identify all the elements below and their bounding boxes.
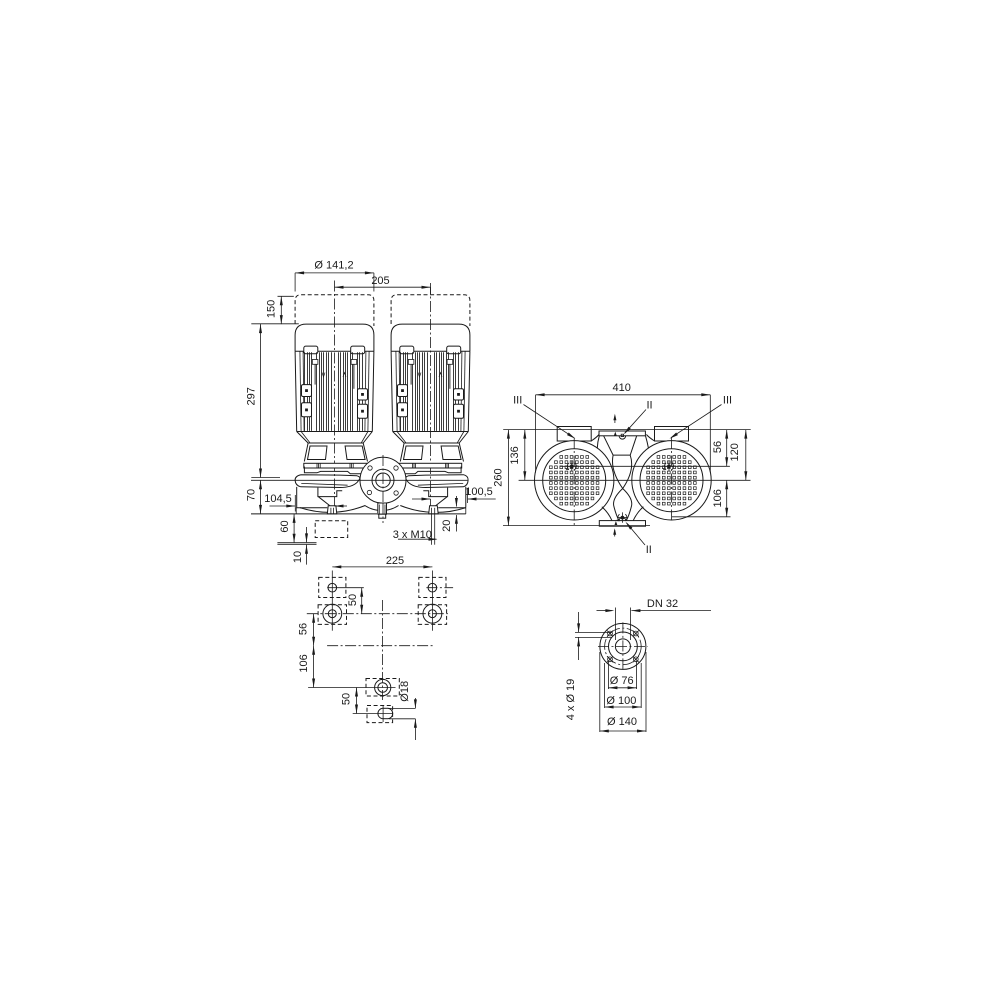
- svg-text:60: 60: [279, 520, 291, 532]
- svg-text:10: 10: [292, 551, 304, 563]
- svg-text:100,5: 100,5: [465, 486, 493, 498]
- svg-text:225: 225: [386, 555, 404, 567]
- svg-text:205: 205: [371, 275, 389, 287]
- svg-text:20: 20: [441, 520, 453, 532]
- svg-text:120: 120: [729, 443, 741, 461]
- svg-text:56: 56: [712, 441, 724, 453]
- svg-text:104,5: 104,5: [264, 493, 292, 505]
- svg-text:50: 50: [341, 693, 353, 705]
- svg-text:150: 150: [266, 300, 278, 318]
- svg-text:II: II: [646, 399, 652, 411]
- svg-text:260: 260: [493, 468, 505, 486]
- svg-text:297: 297: [245, 387, 257, 405]
- svg-text:Ø 140: Ø 140: [607, 716, 637, 728]
- svg-text:II: II: [646, 544, 652, 556]
- svg-text:70: 70: [245, 489, 257, 501]
- svg-text:106: 106: [298, 654, 310, 672]
- svg-text:Ø 76: Ø 76: [610, 675, 634, 687]
- svg-text:III: III: [723, 394, 732, 406]
- svg-text:III: III: [513, 394, 522, 406]
- svg-text:Ø 141,2: Ø 141,2: [314, 259, 353, 271]
- svg-text:Ø 100: Ø 100: [606, 695, 636, 707]
- svg-text:136: 136: [509, 446, 521, 464]
- svg-text:4 x Ø 19: 4 x Ø 19: [565, 679, 577, 721]
- svg-text:50: 50: [347, 594, 359, 606]
- svg-text:410: 410: [613, 382, 631, 394]
- svg-text:Ø18: Ø18: [399, 681, 411, 702]
- svg-text:DN 32: DN 32: [647, 598, 678, 610]
- svg-text:106: 106: [712, 489, 724, 507]
- svg-text:56: 56: [298, 623, 310, 635]
